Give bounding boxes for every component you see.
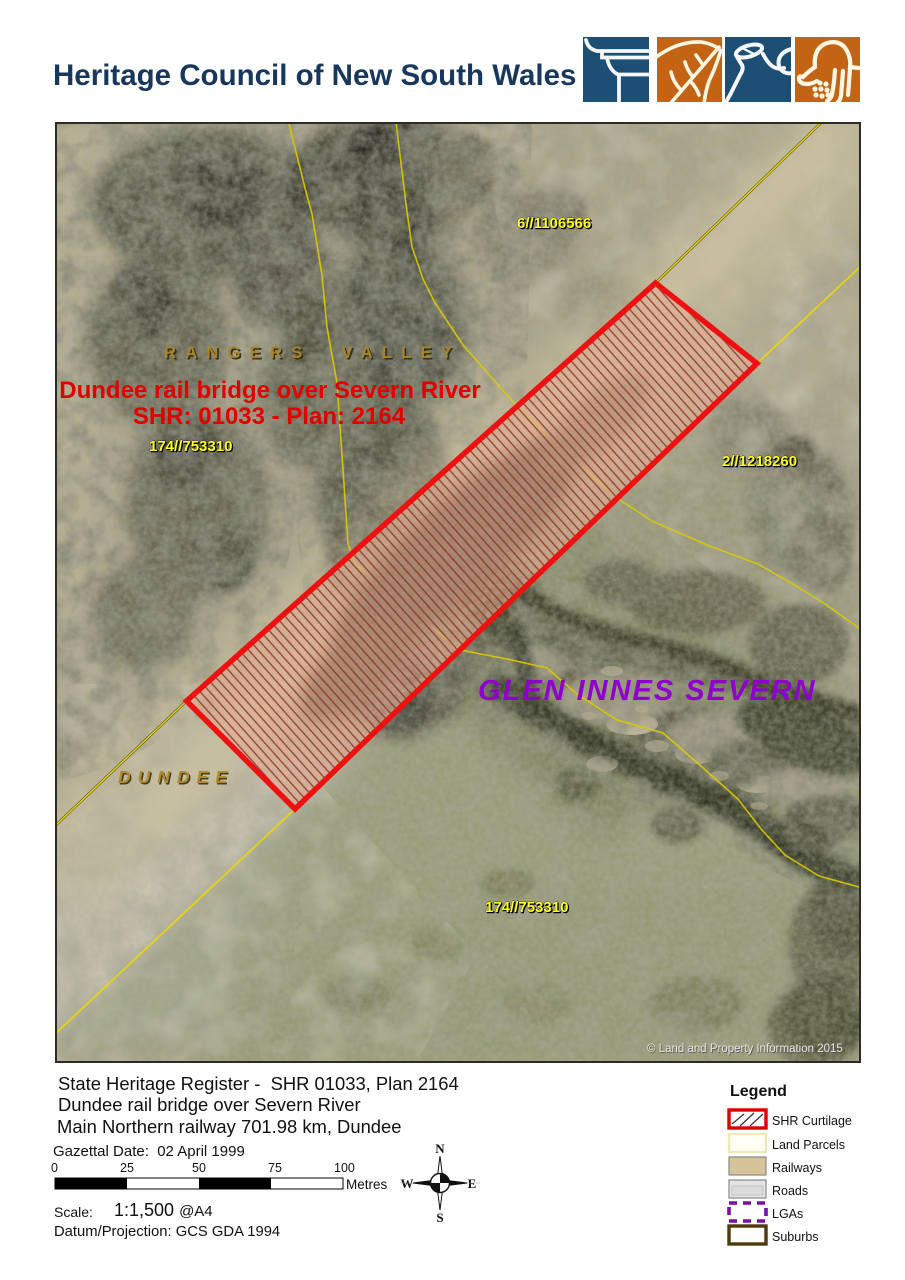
svg-text:25: 25 [120,1161,134,1175]
svg-text:Roads: Roads [772,1184,808,1198]
svg-text:Land Parcels: Land Parcels [772,1138,845,1152]
svg-text:Metres: Metres [346,1177,388,1192]
svg-text:2//1218260: 2//1218260 [722,453,797,470]
svg-text:174//753310: 174//753310 [485,899,568,916]
svg-text:SHR Curtilage: SHR Curtilage [772,1114,852,1128]
svg-text:Legend: Legend [730,1083,787,1100]
svg-text:N: N [435,1141,445,1156]
svg-text:6//1106566: 6//1106566 [517,215,591,232]
svg-text:LGAs: LGAs [772,1207,803,1221]
svg-text:DUNDEE: DUNDEE [118,767,234,787]
svg-text:© Land and Property Informatio: © Land and Property Information 2015 [647,1043,843,1055]
svg-text:SHR: 01033 - Plan: 2164: SHR: 01033 - Plan: 2164 [133,403,406,430]
svg-text:100: 100 [334,1161,355,1175]
svg-text:75: 75 [268,1161,282,1175]
svg-text:0: 0 [51,1161,58,1175]
svg-text:RANGERS VALLEY: RANGERS VALLEY [164,344,461,362]
svg-text:GLEN INNES SEVERN: GLEN INNES SEVERN [478,675,817,707]
svg-text:Railways: Railways [772,1161,822,1175]
svg-text:174//753310: 174//753310 [149,438,232,455]
svg-text:Dundee rail bridge over Severn: Dundee rail bridge over Severn River [59,377,481,404]
svg-text:S: S [436,1210,443,1224]
svg-text:Suburbs: Suburbs [772,1230,819,1244]
svg-text:50: 50 [192,1161,206,1175]
svg-text:E: E [468,1176,477,1191]
svg-text:W: W [401,1176,414,1191]
